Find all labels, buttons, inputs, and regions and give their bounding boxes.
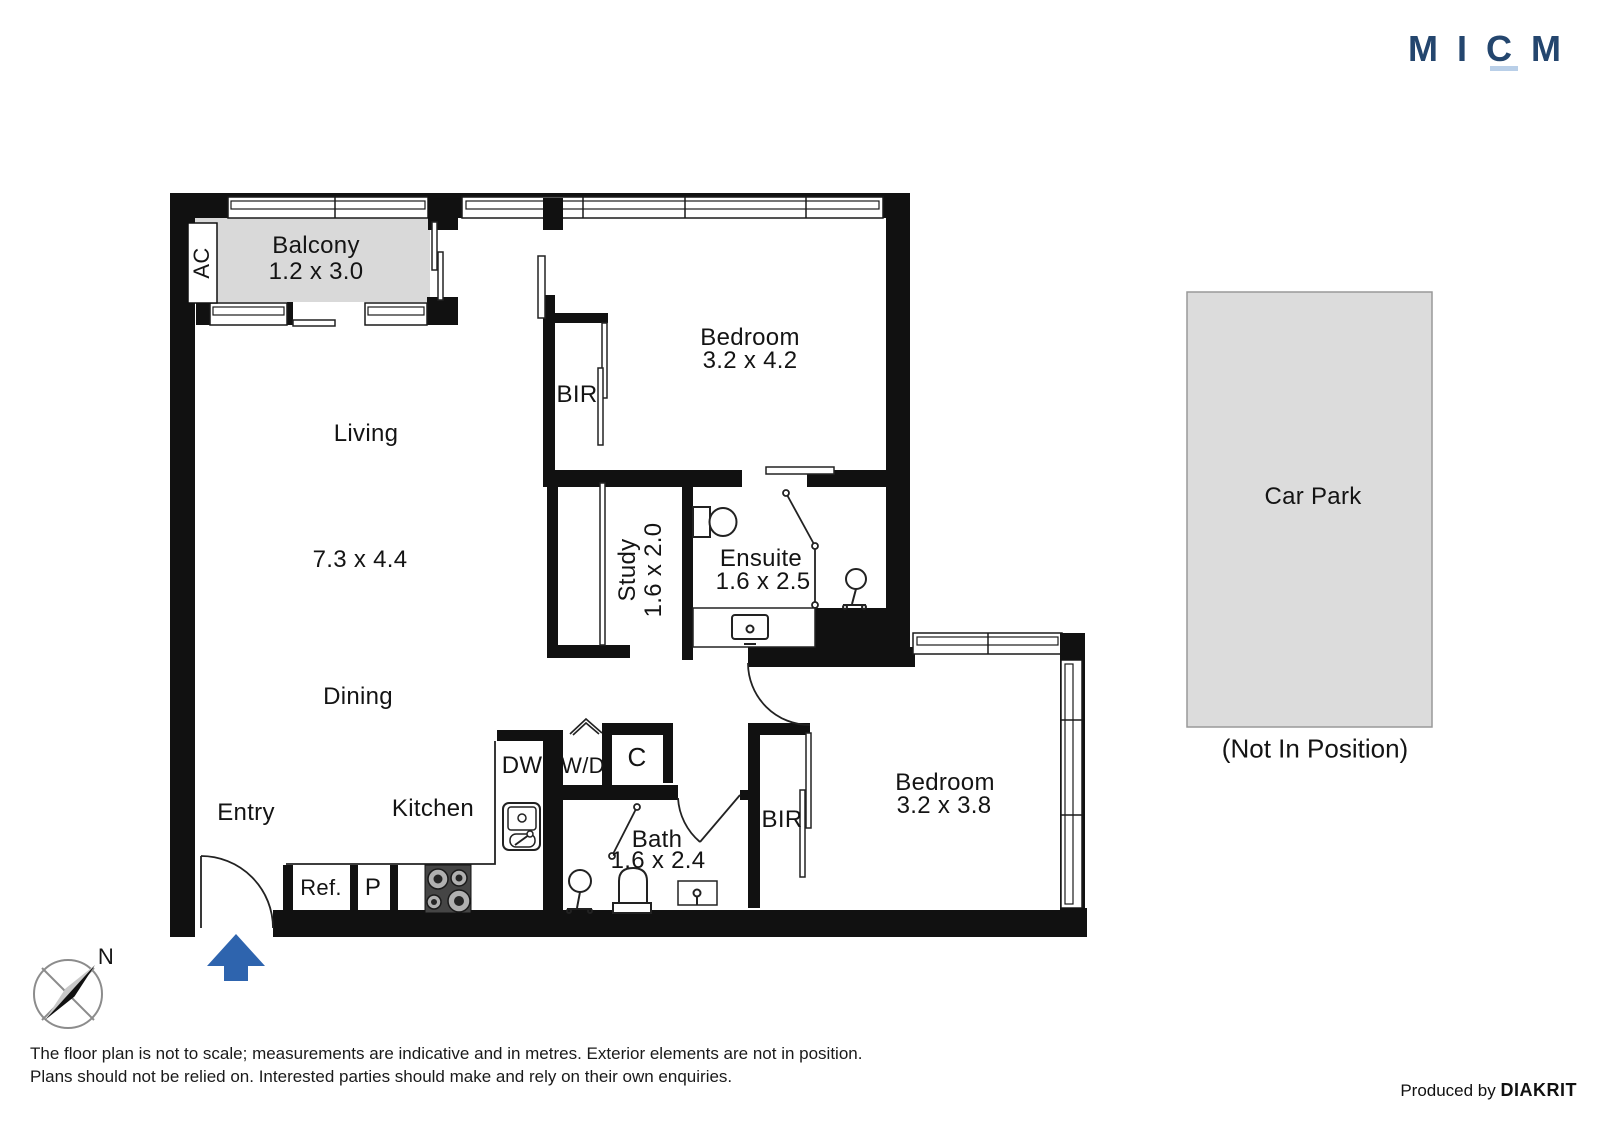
north-label: N <box>98 945 114 969</box>
entry-arrow-icon <box>207 934 265 981</box>
kitchen-sink-icon <box>503 803 540 850</box>
shower-icon <box>843 569 866 609</box>
toilet-icon <box>693 507 737 537</box>
entry-label: Entry <box>217 801 275 825</box>
vanity-icon <box>678 881 717 905</box>
disclaimer-text: The floor plan is not to scale; measurem… <box>30 1042 862 1088</box>
micm-logo: MICM <box>1408 28 1580 70</box>
living-dims: 7.3 x 4.4 <box>313 548 408 572</box>
balcony-dims: 1.2 x 3.0 <box>269 260 364 284</box>
pantry-label: P <box>365 876 381 900</box>
bedroom1-dims: 3.2 x 4.2 <box>703 349 798 373</box>
vanity-icon <box>693 608 815 647</box>
compass-icon <box>34 960 102 1028</box>
balcony-label: Balcony <box>272 234 359 258</box>
dishwasher-label: DW <box>502 754 543 778</box>
study-name: Study <box>614 539 641 602</box>
laundry-door-icon <box>570 719 602 735</box>
cupboard-label: C <box>627 745 646 769</box>
floor-plan-canvas: Balcony 1.2 x 3.0 AC Living 7.3 x 4.4 Di… <box>0 0 1600 1131</box>
dining-label: Dining <box>323 685 393 709</box>
ac-label: AC <box>190 247 214 278</box>
bir1-label: BIR <box>557 383 598 407</box>
car-park-label: Car Park <box>1264 485 1361 509</box>
entry-opening <box>195 910 273 937</box>
cooktop-icon <box>425 865 471 913</box>
kitchen-label: Kitchen <box>392 797 474 821</box>
fridge-label: Ref. <box>300 876 342 900</box>
ensuite-dims: 1.6 x 2.5 <box>716 570 811 594</box>
living-label: Living <box>334 422 399 446</box>
bath-fixtures <box>567 868 717 913</box>
toilet-icon <box>613 868 651 913</box>
study-label: Study 1.6 x 2.0 <box>616 523 666 618</box>
disclaimer-line1: The floor plan is not to scale; measurem… <box>30 1042 862 1065</box>
bir2-label: BIR <box>762 808 803 832</box>
micm-logo-underline <box>1490 66 1518 71</box>
bath-dims: 1.6 x 2.4 <box>611 849 706 873</box>
washer-dryer-label: W/D <box>561 754 605 778</box>
bedroom2-dims: 3.2 x 3.8 <box>897 794 992 818</box>
produced-by-prefix: Produced by <box>1400 1081 1495 1100</box>
producer-brand: DIAKRIT <box>1501 1080 1578 1100</box>
produced-by: Produced by DIAKRIT <box>1400 1080 1577 1101</box>
study-dims: 1.6 x 2.0 <box>642 523 666 618</box>
disclaimer-line2: Plans should not be relied on. Intereste… <box>30 1065 862 1088</box>
shower-icon <box>567 870 592 913</box>
car-park-note: (Not In Position) <box>1222 734 1408 765</box>
